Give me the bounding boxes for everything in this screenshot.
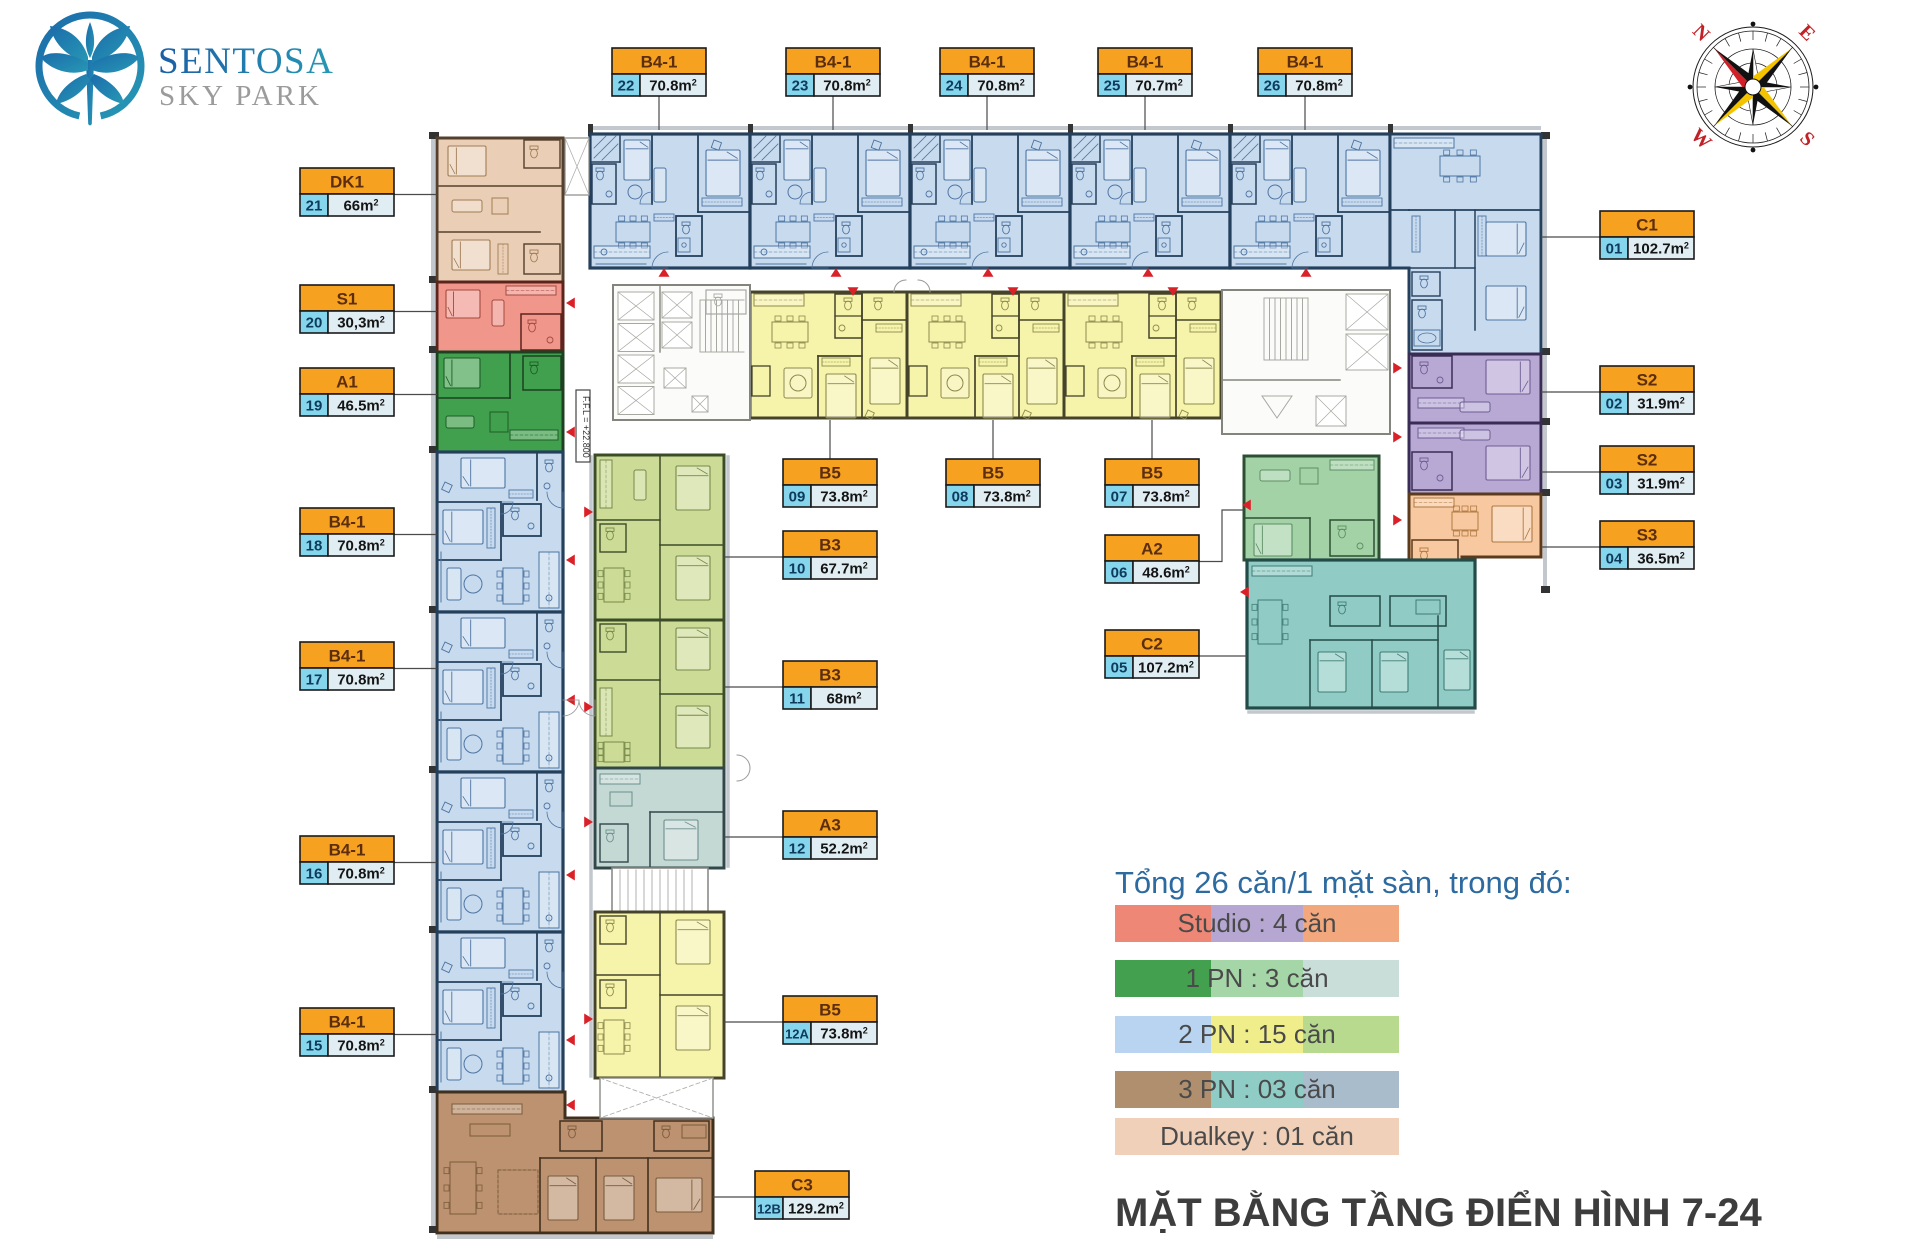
svg-text:70.8m2: 70.8m2 (337, 1038, 385, 1055)
svg-text:2 PN : 15 căn: 2 PN : 15 căn (1178, 1019, 1336, 1049)
svg-text:B5: B5 (819, 1001, 841, 1020)
svg-text:1 PN : 3 căn: 1 PN : 3 căn (1185, 963, 1328, 993)
svg-text:31.9m2: 31.9m2 (1637, 396, 1685, 413)
svg-text:70.8m2: 70.8m2 (337, 538, 385, 555)
svg-text:70.8m2: 70.8m2 (977, 78, 1025, 95)
svg-text:17: 17 (306, 672, 323, 689)
svg-text:46.5m2: 46.5m2 (337, 398, 385, 415)
svg-text:70.8m2: 70.8m2 (823, 78, 871, 95)
svg-text:30,3m2: 30,3m2 (337, 315, 385, 332)
svg-text:12B: 12B (757, 1202, 781, 1217)
svg-text:A1: A1 (336, 373, 358, 392)
svg-text:03: 03 (1606, 476, 1623, 493)
svg-text:A2: A2 (1141, 540, 1163, 559)
svg-text:67.7m2: 67.7m2 (820, 561, 868, 578)
svg-text:B5: B5 (1141, 464, 1163, 483)
svg-text:C3: C3 (791, 1176, 813, 1195)
svg-text:70.7m2: 70.7m2 (1135, 78, 1183, 95)
svg-text:08: 08 (952, 489, 969, 506)
svg-text:B4-1: B4-1 (329, 513, 366, 532)
svg-text:31.9m2: 31.9m2 (1637, 476, 1685, 493)
svg-text:22: 22 (618, 78, 635, 95)
svg-text:70.8m2: 70.8m2 (337, 672, 385, 689)
svg-text:70.8m2: 70.8m2 (1295, 78, 1343, 95)
svg-text:A3: A3 (819, 816, 841, 835)
svg-text:70.8m2: 70.8m2 (337, 866, 385, 883)
svg-text:21: 21 (306, 198, 323, 215)
svg-text:25: 25 (1104, 78, 1121, 95)
svg-text:SENTOSA: SENTOSA (158, 41, 334, 82)
svg-text:09: 09 (789, 489, 806, 506)
svg-text:F.F.L = +22.800: F.F.L = +22.800 (581, 396, 591, 458)
svg-text:02: 02 (1606, 396, 1623, 413)
svg-text:129.2m2: 129.2m2 (788, 1201, 844, 1218)
svg-text:B4-1: B4-1 (329, 841, 366, 860)
svg-text:B4-1: B4-1 (329, 647, 366, 666)
svg-text:19: 19 (306, 398, 323, 415)
svg-text:B5: B5 (982, 464, 1004, 483)
svg-text:S3: S3 (1637, 526, 1658, 545)
svg-text:B3: B3 (819, 536, 841, 555)
svg-text:07: 07 (1111, 489, 1128, 506)
svg-text:S1: S1 (337, 290, 358, 309)
svg-text:S2: S2 (1637, 371, 1658, 390)
svg-text:15: 15 (306, 1038, 323, 1055)
svg-text:Tổng 26 căn/1 mặt sàn, trong đ: Tổng 26 căn/1 mặt sàn, trong đó: (1115, 865, 1572, 900)
svg-text:68m2: 68m2 (826, 691, 861, 708)
svg-text:SKY PARK: SKY PARK (159, 80, 322, 112)
svg-text:48.6m2: 48.6m2 (1142, 565, 1190, 582)
svg-text:DK1: DK1 (330, 173, 364, 192)
svg-text:12A: 12A (785, 1027, 809, 1042)
svg-text:MẶT BẰNG TẦNG ĐIỂN HÌNH 7-24: MẶT BẰNG TẦNG ĐIỂN HÌNH 7-24 (1115, 1188, 1762, 1235)
svg-text:3 PN : 03 căn: 3 PN : 03 căn (1178, 1074, 1336, 1104)
svg-text:12: 12 (789, 841, 806, 858)
svg-text:18: 18 (306, 538, 323, 555)
svg-text:26: 26 (1264, 78, 1281, 95)
svg-text:52.2m2: 52.2m2 (820, 841, 868, 858)
svg-text:B4-1: B4-1 (641, 53, 678, 72)
svg-text:B4-1: B4-1 (815, 53, 852, 72)
svg-text:C2: C2 (1141, 635, 1163, 654)
svg-text:102.7m2: 102.7m2 (1633, 241, 1689, 258)
svg-text:Studio : 4 căn: Studio : 4 căn (1178, 908, 1337, 938)
svg-text:20: 20 (306, 315, 323, 332)
svg-text:B4-1: B4-1 (1127, 53, 1164, 72)
svg-text:S2: S2 (1637, 451, 1658, 470)
svg-text:04: 04 (1606, 551, 1623, 568)
svg-text:05: 05 (1111, 660, 1128, 677)
svg-text:66m2: 66m2 (343, 198, 378, 215)
svg-text:C1: C1 (1636, 216, 1658, 235)
svg-text:B3: B3 (819, 666, 841, 685)
svg-text:06: 06 (1111, 565, 1128, 582)
svg-text:73.8m2: 73.8m2 (820, 489, 868, 506)
svg-text:B4-1: B4-1 (1287, 53, 1324, 72)
svg-text:73.8m2: 73.8m2 (1142, 489, 1190, 506)
svg-text:01: 01 (1606, 241, 1623, 258)
svg-text:B4-1: B4-1 (329, 1013, 366, 1032)
svg-text:B4-1: B4-1 (969, 53, 1006, 72)
svg-text:B5: B5 (819, 464, 841, 483)
svg-text:24: 24 (946, 78, 963, 95)
svg-text:107.2m2: 107.2m2 (1138, 660, 1194, 677)
svg-text:10: 10 (789, 561, 806, 578)
svg-text:Dualkey : 01 căn: Dualkey : 01 căn (1160, 1121, 1354, 1151)
svg-text:36.5m2: 36.5m2 (1637, 551, 1685, 568)
svg-text:11: 11 (789, 691, 805, 708)
svg-text:16: 16 (306, 866, 323, 883)
svg-text:70.8m2: 70.8m2 (649, 78, 697, 95)
svg-text:73.8m2: 73.8m2 (820, 1026, 868, 1043)
svg-text:73.8m2: 73.8m2 (983, 489, 1031, 506)
svg-text:23: 23 (792, 78, 809, 95)
